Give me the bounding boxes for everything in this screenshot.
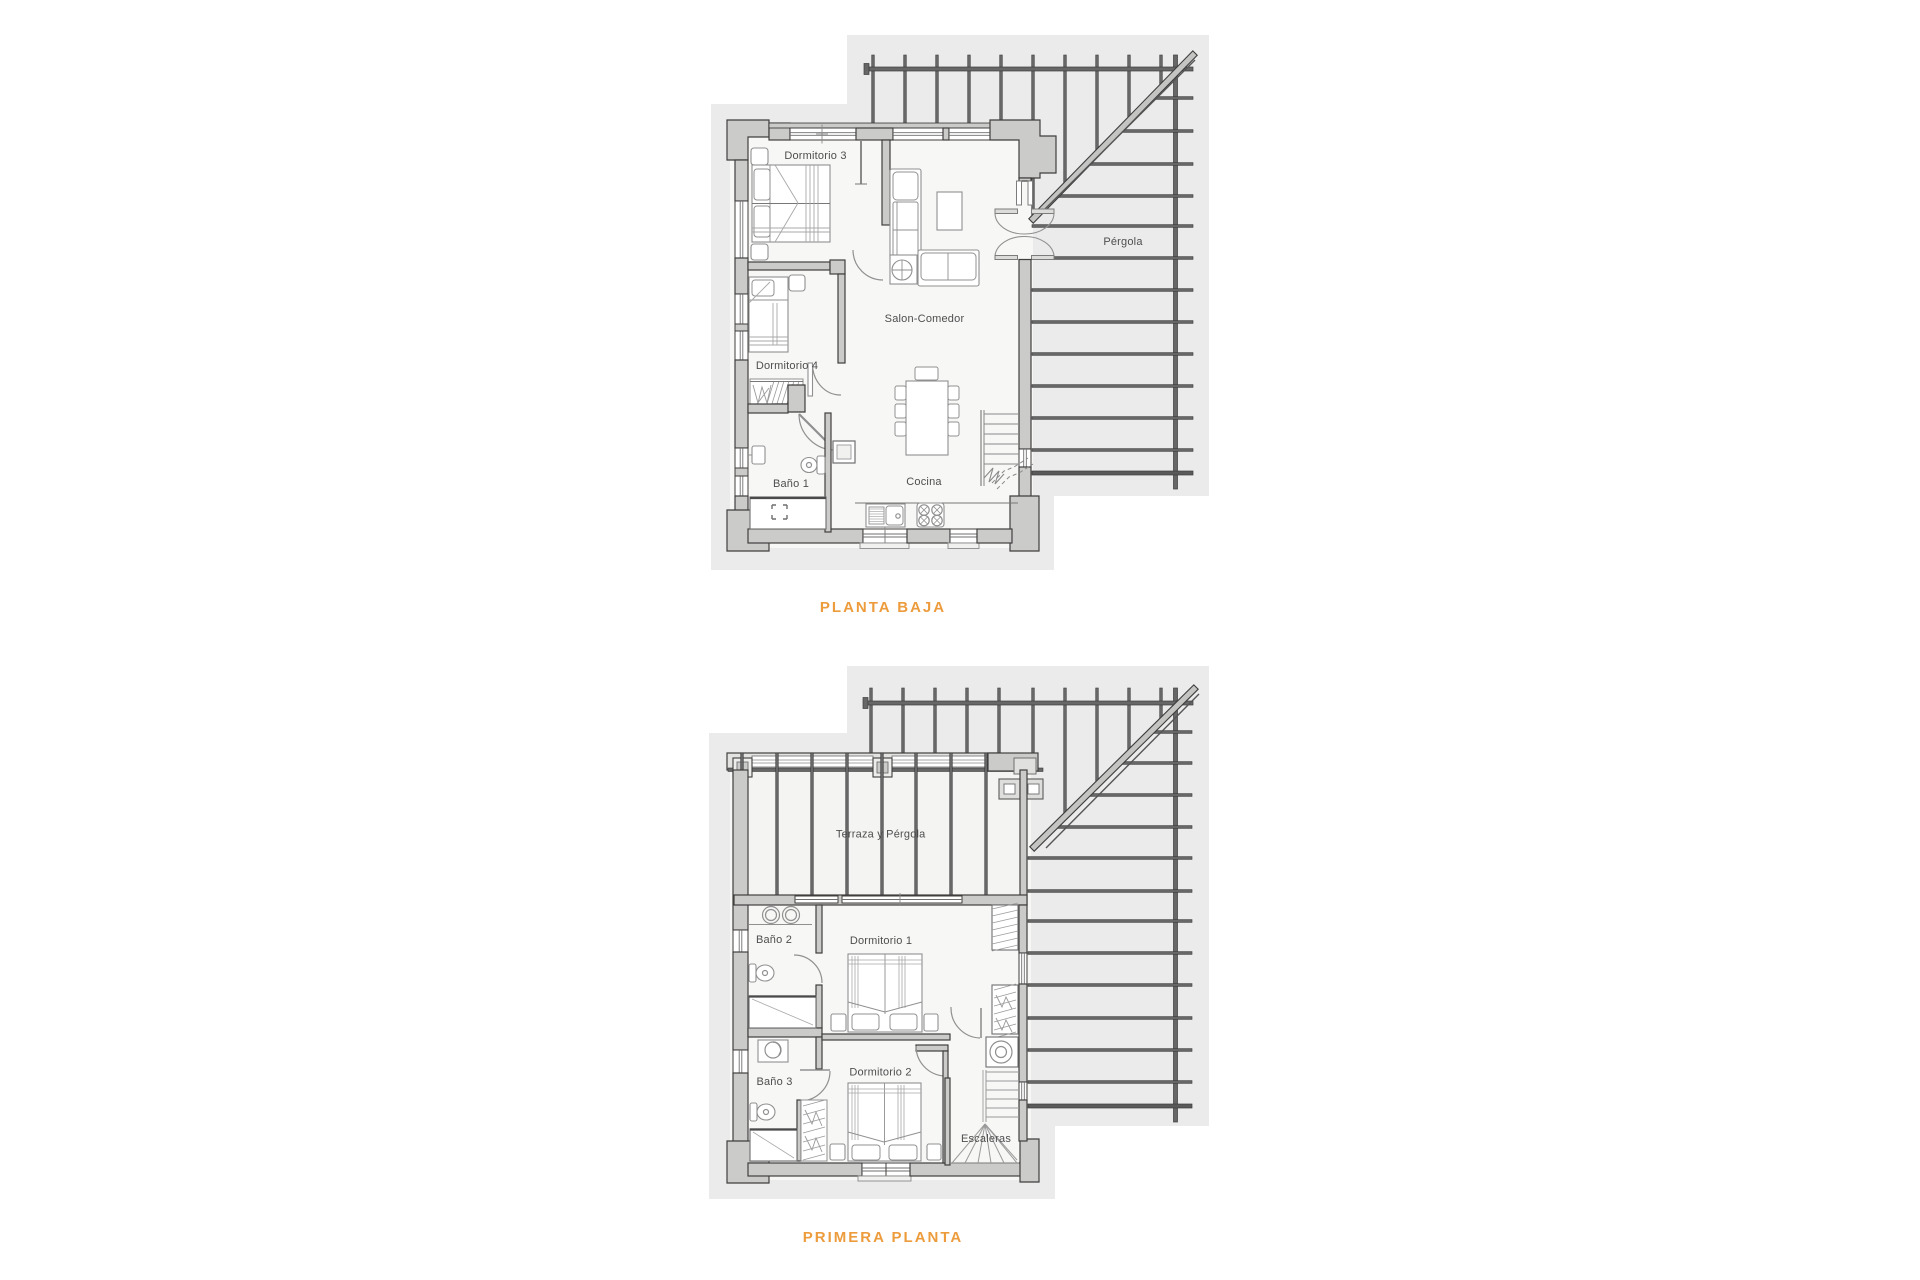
svg-text:Salon-Comedor: Salon-Comedor [885, 313, 965, 325]
svg-text:PLANTA BAJA: PLANTA BAJA [820, 599, 946, 616]
svg-text:Escaleras: Escaleras [961, 1133, 1011, 1145]
svg-text:Cocina: Cocina [906, 476, 942, 488]
svg-text:Baño 1: Baño 1 [773, 478, 809, 490]
svg-text:Dormitorio 2: Dormitorio 2 [849, 1067, 911, 1079]
svg-text:Dormitorio 3: Dormitorio 3 [784, 150, 846, 162]
svg-text:PRIMERA PLANTA: PRIMERA PLANTA [803, 1229, 964, 1246]
svg-text:Terraza y Pérgola: Terraza y Pérgola [836, 829, 926, 841]
svg-text:Baño 2: Baño 2 [756, 934, 792, 946]
svg-text:Dormitorio 1: Dormitorio 1 [850, 935, 912, 947]
svg-text:Pérgola: Pérgola [1103, 236, 1143, 248]
svg-text:Baño 3: Baño 3 [756, 1076, 792, 1088]
svg-text:Dormitorio 4: Dormitorio 4 [756, 360, 818, 372]
